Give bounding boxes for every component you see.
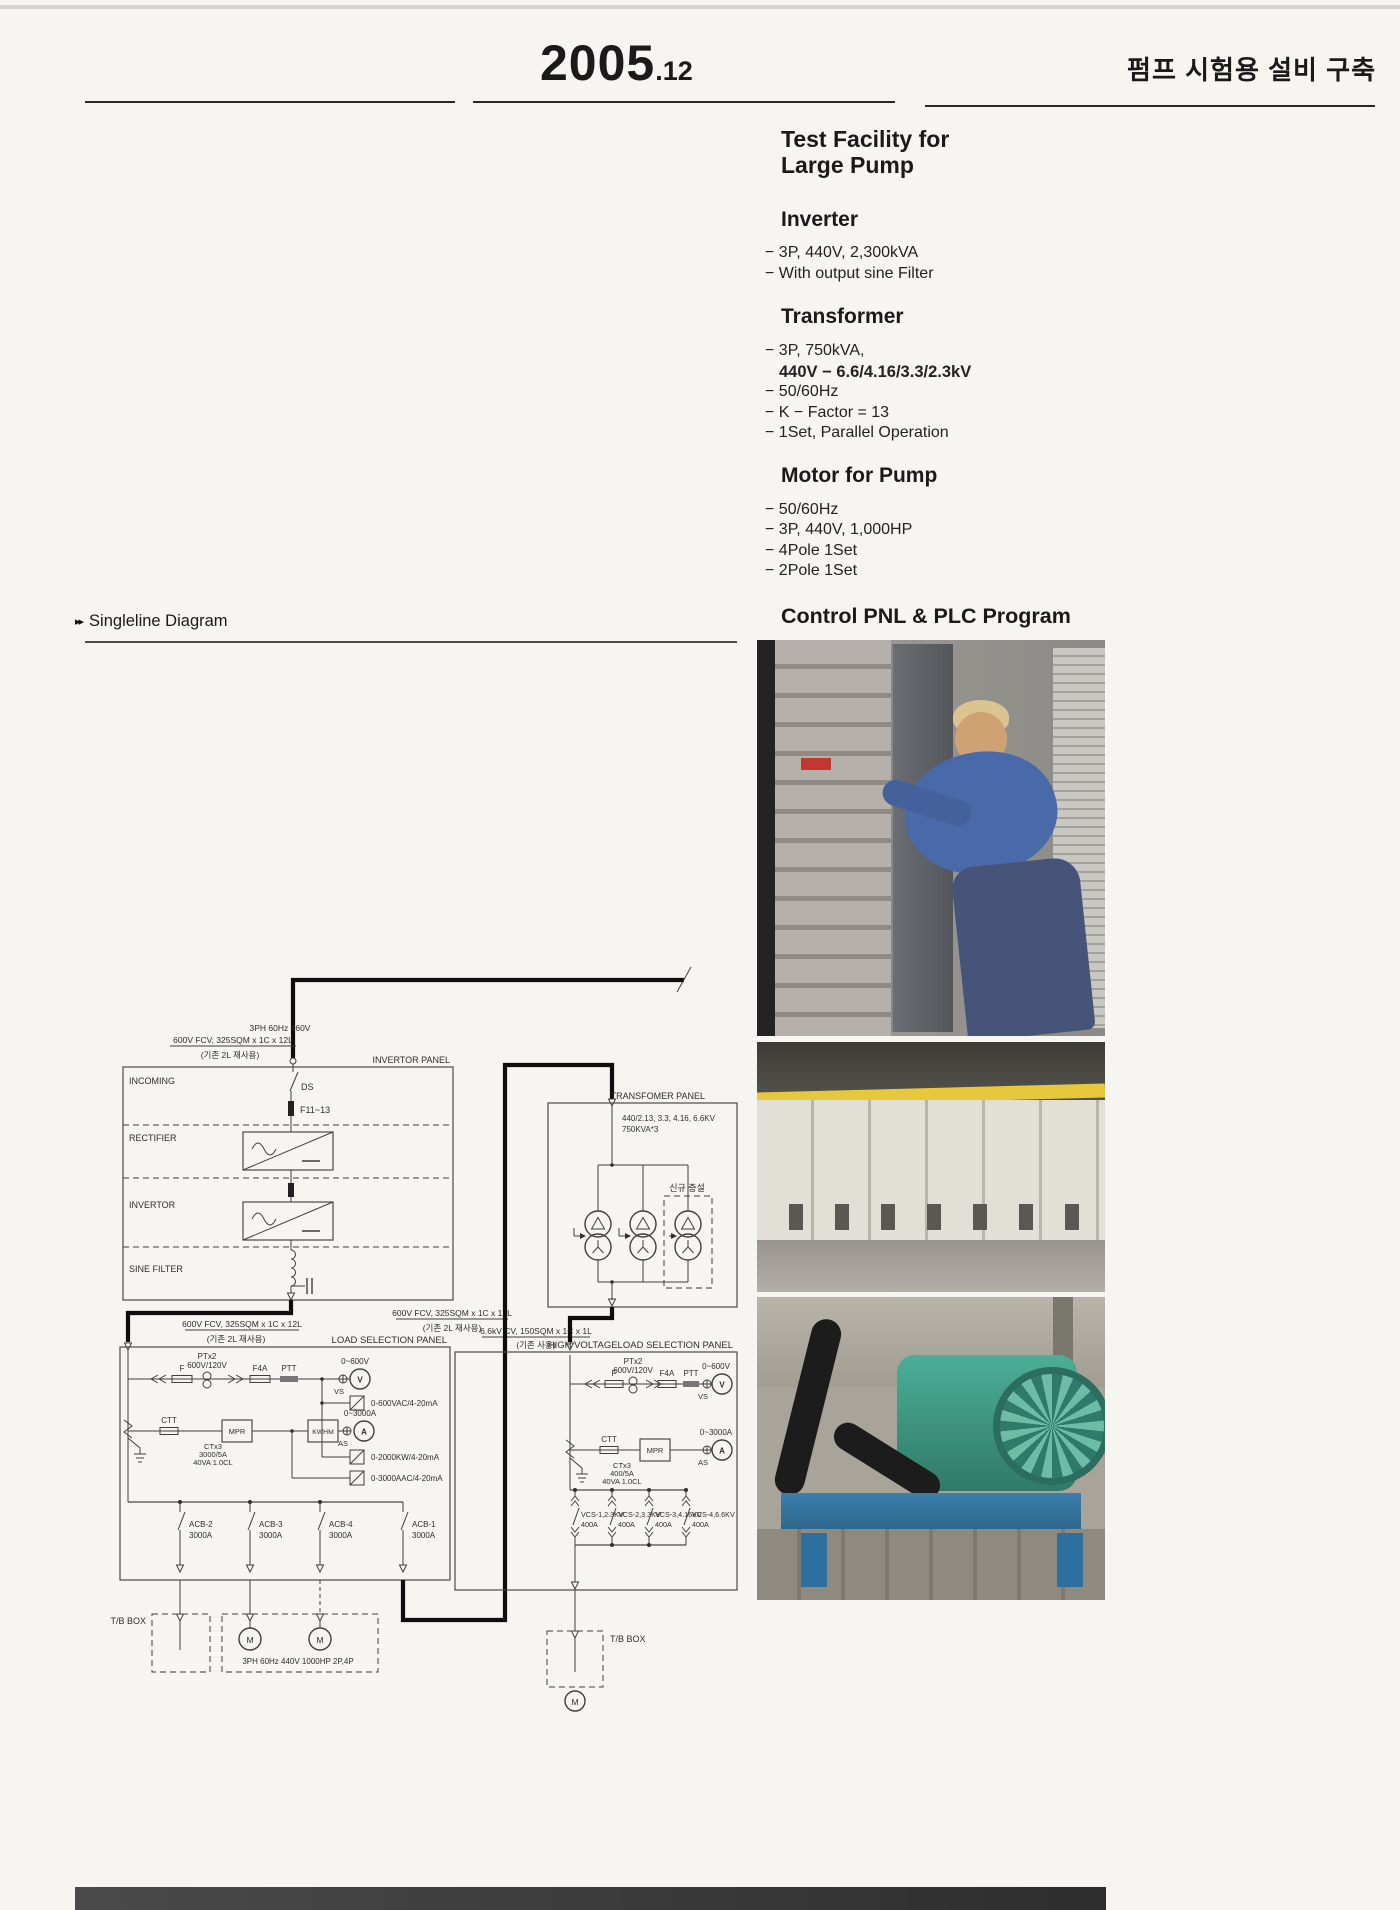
acb-name: ACB-3 [259,1520,283,1529]
vcs-name: VCS-4,6.6KV [692,1510,735,1519]
fuse-icon [288,1101,294,1116]
ctt-label: CTT [601,1435,617,1444]
acb-name: ACB-1 [412,1520,436,1529]
motor-spec-label: 3PH 60Hz 440V 1000HP 2P,4P [242,1657,353,1666]
ds-label: DS [301,1082,314,1092]
pt-ratio-label: 600V/120V [613,1366,653,1375]
dc-fuse-icon [288,1183,294,1197]
transducer1-label: 0-600VAC/4-20mA [371,1399,438,1408]
spec-item: − 3P, 440V, 2,300kVA [765,243,1105,264]
hv-load-selection-panel: HIGH VOLTAGELOAD SELECTION PANEL F PTx2 … [455,1340,737,1590]
spec-item: − 1Set, Parallel Operation [765,423,1105,444]
wye-winding-icon [593,1240,604,1253]
delta-winding-icon [682,1218,695,1230]
page-top-edge [0,5,1400,9]
double-arrow-icon: ▸▸ [75,615,82,628]
incoming-label: INCOMING [129,1076,175,1086]
link3-cable-label: 6.6kV CV, 150SQM x 1C x 1L [480,1326,592,1336]
header-rule-left [85,101,455,103]
transducer-icon [350,1396,364,1410]
vcs-amp: 400A [581,1520,598,1529]
pt-label: PTx2 [624,1357,643,1366]
fuse-f-label: F [180,1364,185,1373]
header-date: 2005.12 [540,34,693,92]
pt-icon [629,1377,637,1393]
link1-cable-label: 600V FCV, 325SQM x 1C x 12L [182,1319,302,1329]
feed-reuse-label: (기존 2L 재사용) [201,1050,260,1060]
acb-breaker: ACB-3 3000A [247,1502,284,1572]
ct-icon [124,1420,132,1438]
arrow-icon [580,1233,586,1239]
photo1-open-inverter-modules [775,640,891,1036]
photo3-blue-post [801,1533,827,1587]
tb-box-right: T/B BOX M [547,1590,646,1711]
footer-bar [75,1887,1106,1910]
as-selector-icon [343,1427,351,1435]
link2-cable-label: 600V FCV, 325SQM x 1C x 12L [392,1308,512,1318]
ctt-label: CTT [161,1416,177,1425]
photo2-floor [757,1240,1105,1292]
pt-label: PTx2 [198,1352,217,1361]
hv-panel-title: HIGH VOLTAGELOAD SELECTION PANEL [548,1340,733,1351]
ct-class-label: 40VA 1.0CL [193,1458,232,1467]
vs-selector-icon [339,1375,347,1383]
delta-winding-icon [637,1218,650,1230]
photo1-red-label [801,758,831,770]
transducer2-label: 0-2000KW/4-20mA [371,1453,440,1462]
photo3-blue-post [1057,1533,1083,1587]
invertor-panel: INVERTOR PANEL INCOMING RECTIFIER INVERT… [123,1055,453,1300]
section-heading-motor: Motor for Pump [765,464,1105,488]
acb-name: ACB-2 [189,1520,213,1529]
section-heading-inverter: Inverter [765,208,1105,232]
arrow-icon [625,1233,631,1239]
vs-label: VS [334,1387,344,1396]
ct-class-label: 40VA 1.0CL [602,1477,641,1486]
ptt-icon [280,1376,298,1382]
link-invertor-to-load: 600V FCV, 325SQM x 1C x 12L (기존 2L 재사용) [125,1300,303,1350]
motor-letter: M [246,1635,253,1645]
spec-item: − 50/60Hz [765,500,1105,521]
vs-selector-icon [703,1380,711,1388]
ptt-label: PTT [281,1364,296,1373]
new-install-label: 신규 증설 [669,1183,705,1193]
spec-item: − 50/60Hz [765,382,1105,403]
rectifier-label: RECTIFIER [129,1133,177,1143]
kwhm-label: KWHM [312,1429,334,1436]
load-panel-title: LOAD SELECTION PANEL [332,1335,447,1346]
ct-icon [566,1440,574,1458]
specs-title: Test Facility for Large Pump [765,126,1105,178]
invertor-panel-title: INVERTOR PANEL [372,1055,450,1065]
invertor-symbol [243,1202,333,1240]
load-selection-panel: LOAD SELECTION PANEL F PTx2 600V/120V F4… [120,1335,450,1580]
link1-reuse-label: (기존 2L 재사용) [207,1334,266,1344]
acb-amp: 3000A [259,1531,283,1540]
wye-winding-icon [683,1240,694,1253]
spec-item: − With output sine Filter [765,264,1105,285]
mpr-label: MPR [229,1427,246,1436]
transformer-panel-title: TRANSFOMER PANEL [611,1091,705,1101]
acb-breaker: ACB-2 3000A [177,1502,214,1572]
acb-amp: 3000A [329,1531,353,1540]
wye-winding-icon [638,1240,649,1253]
photo2-cabinet-vents [757,1204,1105,1230]
motor-box-left: M M 3PH 60Hz 440V 1000HP 2P,4P [222,1580,378,1672]
photo3-base-frame [781,1493,1081,1533]
control-heading: Control PNL & PLC Program [765,604,1105,629]
v-range-label: 0~600V [702,1362,730,1371]
acb-amp: 3000A [189,1531,213,1540]
ptt-label: PTT [683,1369,698,1378]
specs-title-line1: Test Facility for [781,126,1105,152]
vcs-amp: 400A [655,1520,672,1529]
acb-name: ACB-4 [329,1520,353,1529]
spec-item: − 4Pole 1Set [765,541,1105,562]
ground-icon [570,1458,588,1482]
tb-box-left: T/B BOX [110,1580,210,1672]
acb-breaker: ACB-1 3000A [400,1502,437,1572]
pt-ratio-label: 600V/120V [187,1361,227,1370]
singleline-diagram: 3PH 60Hz 460V 600V FCV, 325SQM x 1C x 12… [75,945,745,1760]
motor-letter: M [571,1697,578,1707]
fuse-f4a-label: F4A [660,1369,675,1378]
transducer3-label: 0-3000AAC/4-20mA [371,1474,443,1483]
inductor-icon [291,1250,296,1286]
transformer-icon [619,1165,656,1282]
photo-switchgear-lineup [757,1042,1105,1292]
header-rule-right [925,105,1375,107]
vcs-amp: 400A [692,1520,709,1529]
voltmeter-letter: V [719,1381,725,1390]
photo-inverter-maintenance [757,640,1105,1036]
fuse-label: F11~13 [300,1105,330,1115]
tb-box-right-label: T/B BOX [610,1634,646,1644]
photo1-worker-trousers [950,856,1095,1036]
motor-letter: M [316,1635,323,1645]
spec-item: − 3P, 440V, 1,000HP [765,520,1105,541]
spec-item: − K − Factor = 13 [765,403,1105,424]
spec-item: − 3P, 750kVA, [765,341,1105,362]
fuse-f4a-label: F4A [253,1364,268,1373]
singleline-heading-text: Singleline Diagram [89,612,228,631]
vcs-amp: 400A [618,1520,635,1529]
as-label: AS [698,1458,708,1467]
ammeter-letter: A [719,1447,725,1456]
transformer-rating2: 750KVA*3 [622,1125,659,1134]
transducer-icon [350,1471,364,1485]
specs-column: Test Facility for Large Pump Inverter − … [765,126,1105,629]
voltmeter-letter: V [357,1376,363,1385]
delta-winding-icon [592,1218,605,1230]
vs-label: VS [698,1392,708,1401]
sine-filter-label: SINE FILTER [129,1264,183,1274]
incoming-feed: 3PH 60Hz 460V 600V FCV, 325SQM x 1C x 12… [170,967,691,1064]
a-range-label: 0~3000A [700,1428,733,1437]
acb-amp: 3000A [412,1531,436,1540]
ptt-icon [683,1381,699,1387]
tb-box-left-label: T/B BOX [110,1616,146,1626]
vcs-breaker: VCS-1,2.3KV 400A [571,1490,624,1545]
singleline-rule [85,641,737,643]
header-rule-center [473,101,895,103]
photo-pump-motor [757,1297,1105,1600]
as-selector-icon [703,1446,711,1454]
specs-title-line2: Large Pump [781,152,1105,178]
spec-item: − 2Pole 1Set [765,561,1105,582]
invertor-label: INVERTOR [129,1200,176,1210]
link2-reuse-label: (기존 2L 재사용) [423,1323,482,1333]
transformer-icon [574,1165,611,1282]
rectifier-symbol [243,1132,333,1170]
acb-breaker: ACB-4 3000A [317,1502,354,1572]
ammeter-letter: A [361,1428,367,1437]
spec-item-voltage: 440V − 6.6/4.16/3.3/2.3kV [765,362,1105,383]
pt-icon [203,1372,211,1388]
header-month: .12 [655,56,693,87]
capacitor-icon [291,1278,312,1294]
transformer-panel: TRANSFOMER PANEL 440/2.13, 3.3, 4.16, 6.… [548,1091,737,1307]
v-range-label: 0~600V [341,1357,369,1366]
section-heading-transformer: Transformer [765,305,1105,329]
korean-title: 펌프 시험용 설비 구축 [900,50,1376,87]
feed-phase-label: 3PH 60Hz 460V [250,1023,311,1033]
arrow-icon [671,1233,677,1239]
transducer-icon [350,1450,364,1464]
photo1-cabinet-frame [757,640,775,1036]
header-year: 2005 [540,34,655,92]
ground-icon [128,1438,146,1462]
feed-cable-label: 600V FCV, 325SQM x 1C x 12L [173,1035,293,1045]
mpr-label: MPR [647,1446,664,1455]
ds-switch-icon [290,1072,298,1091]
transformer-rating1: 440/2.13, 3.3, 4.16, 6.6KV [622,1114,716,1123]
as-label: AS [338,1439,348,1448]
singleline-heading: ▸▸ Singleline Diagram [75,612,228,631]
photo3-fan-grille [993,1367,1105,1485]
